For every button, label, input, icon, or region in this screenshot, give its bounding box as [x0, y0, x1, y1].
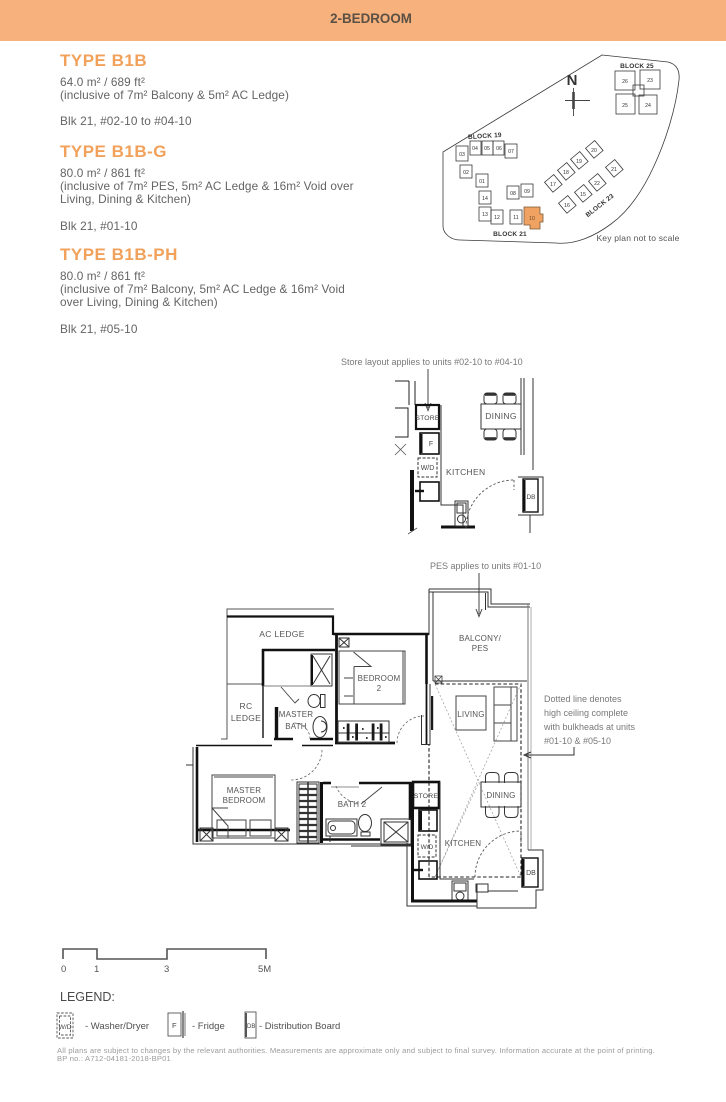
- svg-text:13: 13: [482, 212, 488, 218]
- svg-text:10: 10: [529, 216, 535, 222]
- svg-text:PES: PES: [472, 644, 489, 653]
- svg-text:- Washer/Dryer: - Washer/Dryer: [85, 1021, 149, 1032]
- svg-text:BLOCK 25: BLOCK 25: [620, 63, 654, 70]
- svg-text:DB: DB: [247, 1024, 255, 1030]
- svg-text:DINING: DINING: [486, 791, 515, 800]
- svg-text:Dotted line denotes: Dotted line denotes: [544, 694, 622, 704]
- svg-text:3: 3: [164, 964, 169, 975]
- svg-text:F: F: [172, 1021, 177, 1030]
- svg-text:08: 08: [510, 191, 516, 197]
- svg-text:#01-10 & #05-10: #01-10 & #05-10: [544, 736, 611, 746]
- svg-text:STORE: STORE: [415, 415, 440, 422]
- svg-text:04: 04: [472, 146, 478, 152]
- svg-text:16: 16: [564, 203, 570, 209]
- svg-text:KITCHEN: KITCHEN: [446, 467, 485, 477]
- svg-text:19: 19: [576, 159, 582, 165]
- svg-text:21: 21: [611, 167, 617, 173]
- svg-text:18: 18: [563, 170, 569, 176]
- svg-text:MASTER: MASTER: [279, 710, 314, 719]
- svg-text:MASTER: MASTER: [227, 786, 262, 795]
- svg-text:BEDROOM: BEDROOM: [358, 674, 401, 683]
- svg-text:Key plan not to scale: Key plan not to scale: [596, 233, 679, 243]
- svg-text:01: 01: [479, 179, 485, 185]
- svg-text:17: 17: [550, 182, 556, 188]
- svg-text:DB: DB: [526, 870, 536, 877]
- svg-text:22: 22: [594, 181, 600, 187]
- svg-text:02: 02: [463, 170, 469, 176]
- svg-text:BP no.: A712-04181-2018-BP01: BP no.: A712-04181-2018-BP01: [57, 1054, 171, 1063]
- svg-text:AC LEDGE: AC LEDGE: [259, 629, 304, 639]
- svg-text:N: N: [567, 72, 578, 89]
- svg-text:03: 03: [459, 152, 465, 158]
- svg-text:12: 12: [494, 215, 500, 221]
- svg-text:06: 06: [496, 146, 502, 152]
- svg-text:2: 2: [377, 684, 382, 693]
- svg-text:BLOCK 19: BLOCK 19: [468, 132, 502, 141]
- svg-text:1: 1: [94, 964, 99, 975]
- svg-text:- Distribution Board: - Distribution Board: [259, 1021, 340, 1032]
- svg-text:0: 0: [61, 964, 66, 975]
- svg-text:23: 23: [647, 78, 653, 84]
- svg-text:5M: 5M: [258, 964, 271, 975]
- svg-text:LEDGE: LEDGE: [231, 713, 261, 723]
- svg-text:11: 11: [513, 215, 518, 221]
- svg-text:with bulkheads at units: with bulkheads at units: [543, 722, 636, 732]
- svg-text:high ceiling complete: high ceiling complete: [544, 708, 628, 718]
- svg-text:PES applies to units #01-10: PES applies to units #01-10: [430, 561, 541, 571]
- svg-text:LIVING: LIVING: [457, 710, 484, 719]
- svg-text:W/D: W/D: [421, 465, 435, 472]
- svg-text:20: 20: [591, 148, 597, 154]
- svg-text:26: 26: [622, 79, 628, 85]
- svg-text:W/D: W/D: [59, 1024, 72, 1031]
- svg-text:STORE: STORE: [414, 793, 439, 800]
- svg-text:KITCHEN: KITCHEN: [445, 839, 482, 848]
- svg-text:25: 25: [622, 103, 628, 109]
- svg-text:DB: DB: [526, 494, 535, 501]
- svg-text:- Fridge: - Fridge: [192, 1021, 225, 1032]
- svg-text:W/D: W/D: [421, 844, 434, 851]
- svg-text:RC: RC: [240, 701, 253, 711]
- svg-text:05: 05: [484, 146, 490, 152]
- svg-text:15: 15: [580, 192, 586, 198]
- svg-text:07: 07: [508, 149, 514, 155]
- svg-text:BLOCK 21: BLOCK 21: [493, 231, 527, 238]
- svg-text:BEDROOM: BEDROOM: [223, 796, 266, 805]
- svg-text:BALCONY/: BALCONY/: [459, 634, 502, 643]
- svg-text:14: 14: [482, 196, 488, 202]
- svg-text:LEGEND:: LEGEND:: [60, 990, 115, 1004]
- svg-text:DINING: DINING: [485, 411, 517, 421]
- svg-text:09: 09: [524, 189, 530, 195]
- svg-text:F: F: [429, 441, 433, 448]
- svg-text:Store layout applies to units: Store layout applies to units #02-10 to …: [341, 357, 523, 367]
- svg-text:24: 24: [645, 103, 651, 109]
